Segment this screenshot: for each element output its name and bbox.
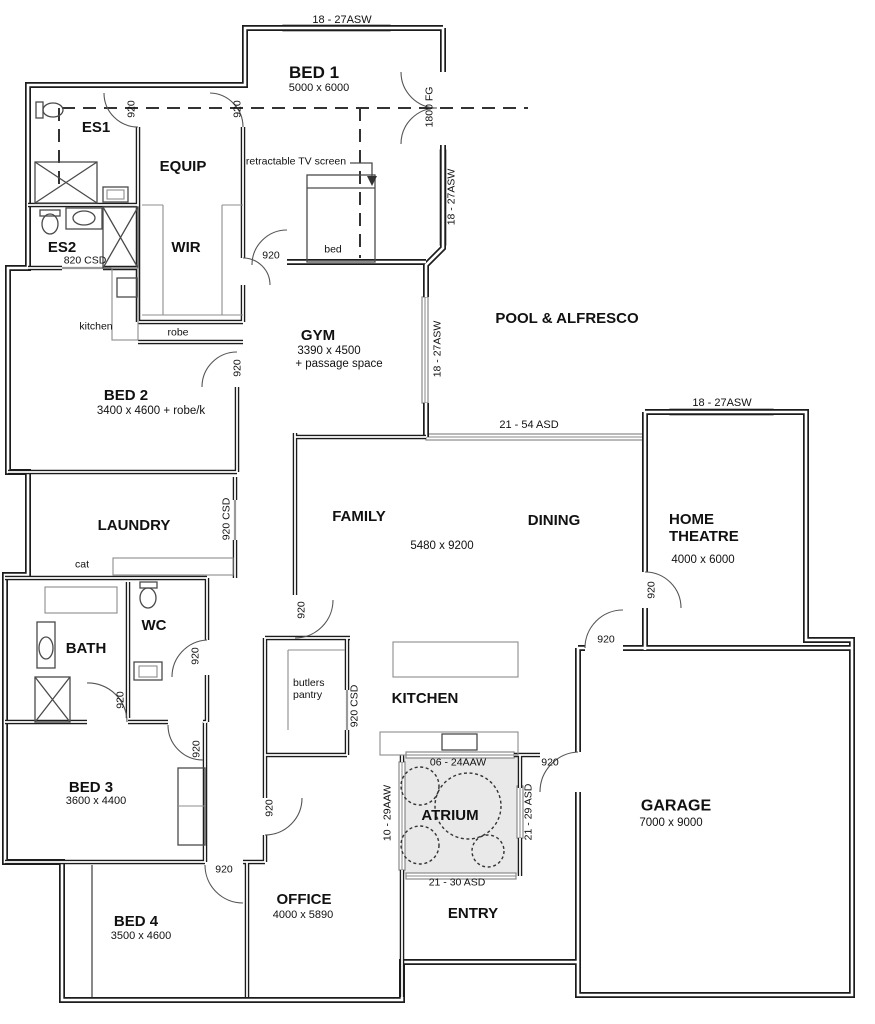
room-label-wir: WIR [171,240,200,256]
window-label-atrium-left: 10 - 29AAW [382,785,393,841]
door-label-920-bath: 920 [115,691,126,709]
door-label-920-bed2: 920 [232,359,243,377]
door-label-920-corridor-east: 920 [232,100,243,118]
door-label-920-garage-side: 920 [541,757,559,768]
room-label-home-theatre: HOME THEATRE [669,511,759,545]
floor-plan: BED 1 5000 x 6000 ES1 EQUIP ES2 WIR GYM … [0,0,875,1024]
room-label-office: OFFICE [277,892,332,908]
window-label-bed1-right: 18 - 27ASW [446,169,457,226]
dim-label-living: 5480 x 9200 [410,540,473,552]
room-label-butlers-pantry: butlers pantry [293,678,349,701]
feature-label-cat-door: cat [75,559,89,570]
window-label-home-theatre: 18 - 27ASW [692,398,751,410]
door-label-920-hall: 920 [264,799,275,817]
note-label-gym: + passage space [295,358,382,370]
dim-label-office: 4000 x 5890 [273,910,334,922]
room-label-wc: WC [142,618,167,634]
room-label-bed4: BED 4 [114,914,158,930]
feature-label-bed: bed [324,244,342,255]
feature-label-kitchenette: kitchen [79,321,112,332]
window-label-atrium-top: 06 - 24AAW [430,757,486,768]
door-label-21-54asd: 21 - 54 ASD [499,420,558,432]
room-label-laundry: LAUNDRY [98,518,171,534]
room-label-bed3: BED 3 [69,780,113,796]
door-label-920-corridor-west: 920 [126,100,137,118]
window-label-gym-right: 18 - 27ASW [432,321,443,378]
room-label-entry: ENTRY [448,906,498,922]
door-label-920-bed3: 920 [191,740,202,758]
dim-label-bed4: 3500 x 4600 [111,931,172,943]
door-label-820csd-es2: 820 CSD [64,255,107,266]
door-label-920-bed1: 920 [262,250,280,261]
door-label-920-wc: 920 [190,647,201,665]
dim-label-home-theatre: 4000 x 6000 [671,554,734,566]
door-label-920-garage-top: 920 [597,634,615,645]
dim-label-bed1: 5000 x 6000 [289,83,350,95]
dim-label-bed2: 3400 x 4600 + robe/k [97,405,205,417]
door-label-920csd-pantry: 920 CSD [349,685,360,728]
door-swing-arcs [87,72,681,903]
room-label-gym: GYM [301,328,335,344]
room-label-pool-alfresco: POOL & ALFRESCO [495,311,638,327]
room-label-atrium: ATRIUM [421,808,478,824]
door-label-21-30asd: 21 - 30 ASD [429,877,486,888]
room-label-equip: EQUIP [160,159,207,175]
room-label-bed2: BED 2 [104,388,148,404]
door-label-920-bed4: 920 [215,864,233,875]
door-label-1800fg: 1800 FG [424,87,435,128]
room-label-dining: DINING [528,513,581,529]
dashed-reference-lines [59,108,528,258]
windows [283,25,773,879]
dim-label-gym: 3390 x 4500 [297,345,360,357]
room-label-garage: GARAGE [641,799,711,816]
room-label-kitchen: KITCHEN [392,691,459,707]
window-label-bed1-top: 18 - 27ASW [312,15,371,27]
feature-label-robe: robe [167,327,188,338]
room-label-family: FAMILY [332,509,386,525]
dim-label-garage: 7000 x 9000 [639,817,702,829]
door-label-920csd-laundry: 920 CSD [221,498,232,541]
room-label-es1: ES1 [82,120,110,136]
door-label-21-29asd: 21 - 29 ASD [523,784,534,841]
feature-label-retractable-tv: retractable TV screen [246,156,346,167]
room-label-bed1: BED 1 [289,64,339,82]
room-label-bath: BATH [66,641,107,657]
door-label-920-home-theatre: 920 [646,581,657,599]
dim-label-bed3: 3600 x 4400 [66,796,127,808]
door-label-920-family: 920 [296,601,307,619]
